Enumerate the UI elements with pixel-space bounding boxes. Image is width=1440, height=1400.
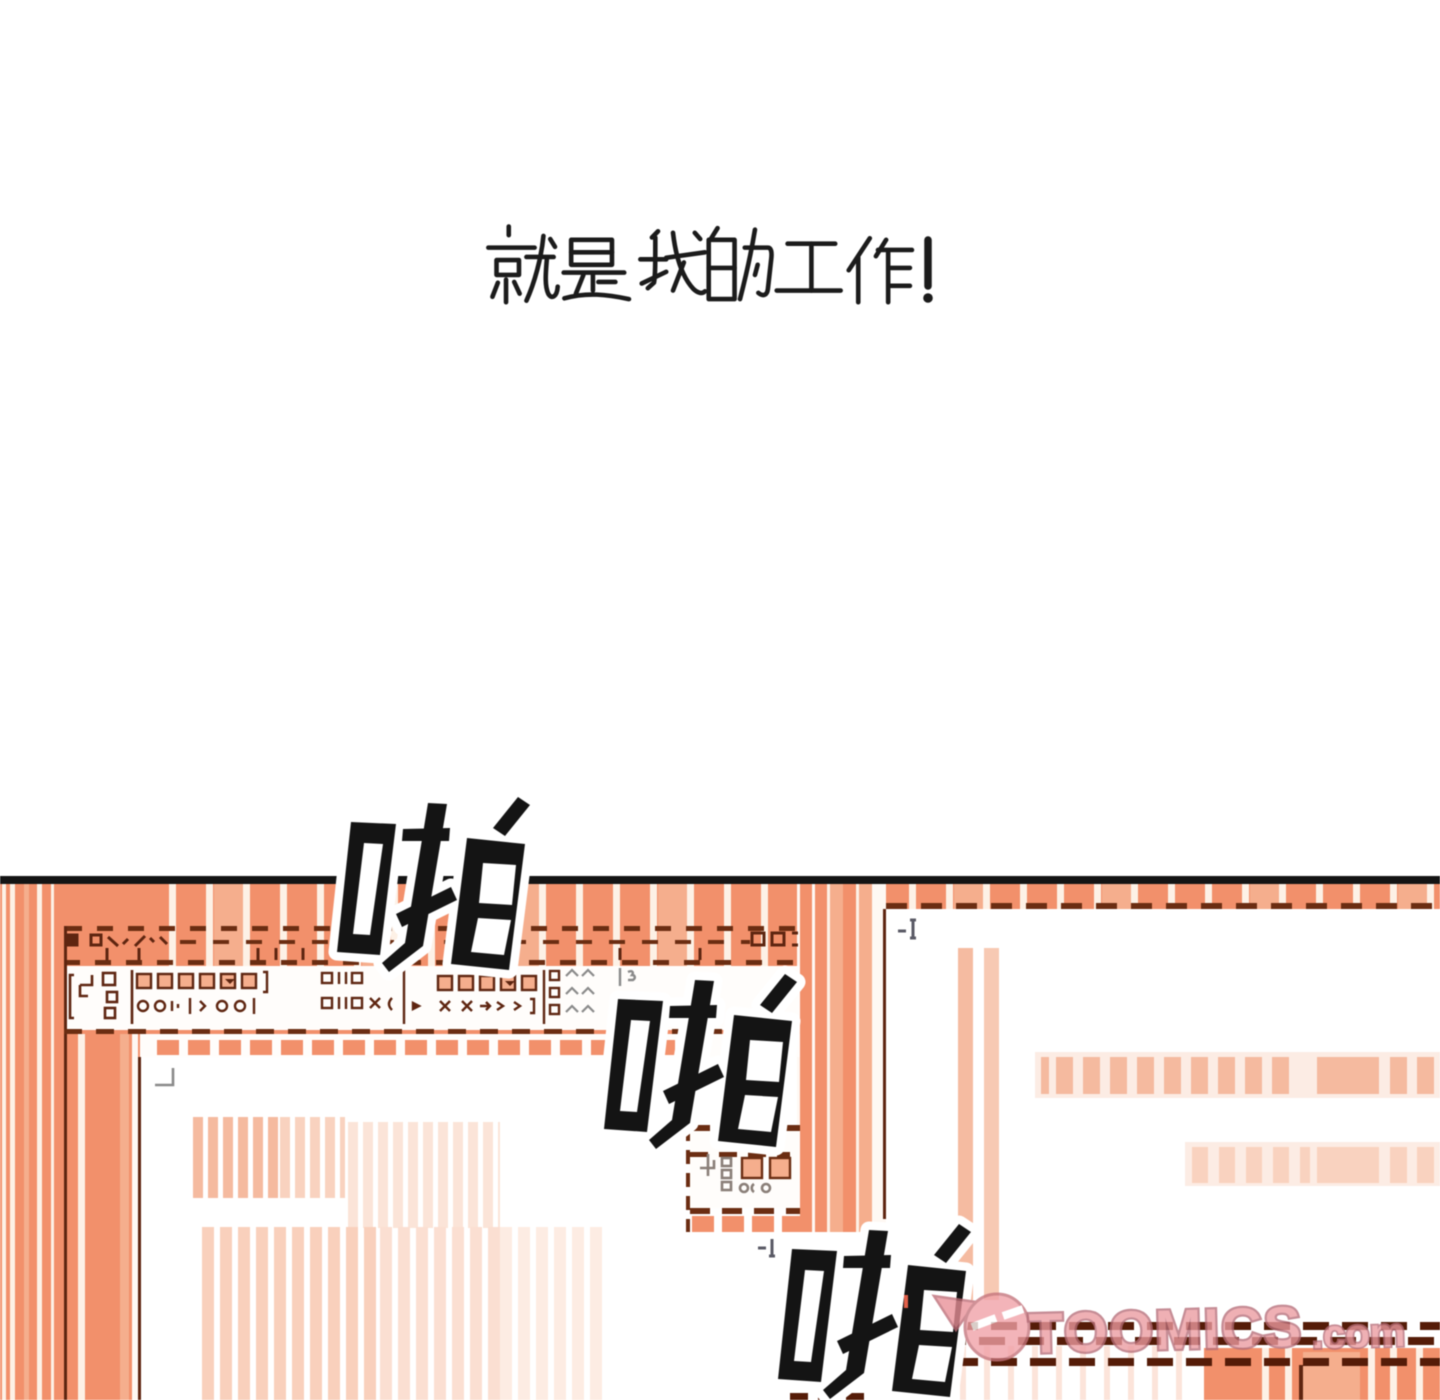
svg-text:.com: .com [1311,1311,1405,1357]
svg-text:TOOMICS: TOOMICS [1028,1295,1304,1365]
